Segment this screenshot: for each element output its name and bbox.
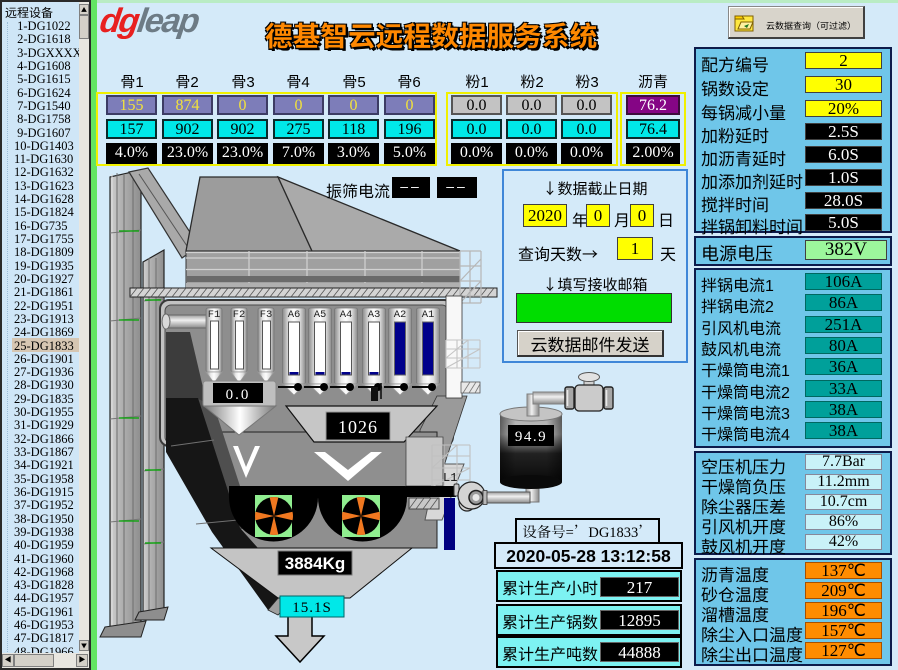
svg-text:F1: F1 [208,309,221,321]
svg-text:94.9: 94.9 [515,429,547,445]
svg-text:1026: 1026 [338,417,378,437]
svg-text:A5: A5 [314,309,327,321]
svg-text:F3: F3 [260,309,273,321]
svg-text:L1: L1 [443,471,457,485]
svg-text:3884Kg: 3884Kg [285,554,345,573]
svg-text:0.0: 0.0 [226,387,251,403]
svg-text:A2: A2 [394,309,407,321]
svg-text:A6: A6 [288,309,301,321]
svg-text:A4: A4 [340,309,353,321]
svg-text:F2: F2 [233,309,246,321]
svg-text:A1: A1 [422,309,435,321]
svg-text:15.1S: 15.1S [292,600,332,616]
svg-text:A3: A3 [368,309,381,321]
